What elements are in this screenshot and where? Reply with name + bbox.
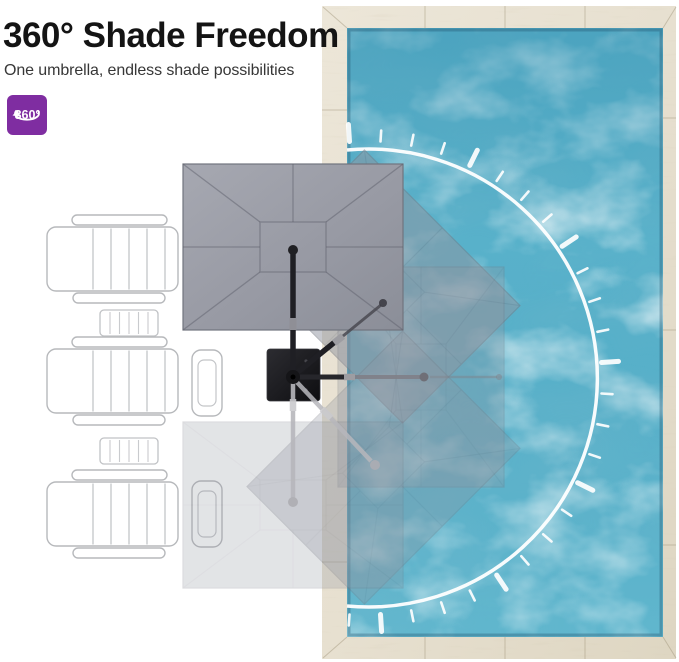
page-title: 360° Shade Freedom xyxy=(3,16,339,56)
lounge-chair-1 xyxy=(47,215,178,303)
arc-tick xyxy=(348,125,349,142)
arc-tick xyxy=(381,615,382,632)
slat-table-1 xyxy=(100,310,158,336)
arc-tick xyxy=(349,615,350,626)
end-table-2 xyxy=(192,350,222,416)
rotation-360-icon: 360° xyxy=(13,108,41,122)
header: 360° Shade Freedom One umbrella, endless… xyxy=(3,16,339,135)
arc-tick xyxy=(381,131,382,142)
slat-table-2 xyxy=(100,438,158,464)
lounge-chair-3 xyxy=(47,470,178,558)
rotation-badge: 360° xyxy=(7,95,47,135)
arc-tick xyxy=(602,361,619,362)
lounge-chair-2 xyxy=(47,337,178,425)
arc-tick xyxy=(602,394,613,395)
page-subtitle: One umbrella, endless shade possibilitie… xyxy=(4,62,339,80)
